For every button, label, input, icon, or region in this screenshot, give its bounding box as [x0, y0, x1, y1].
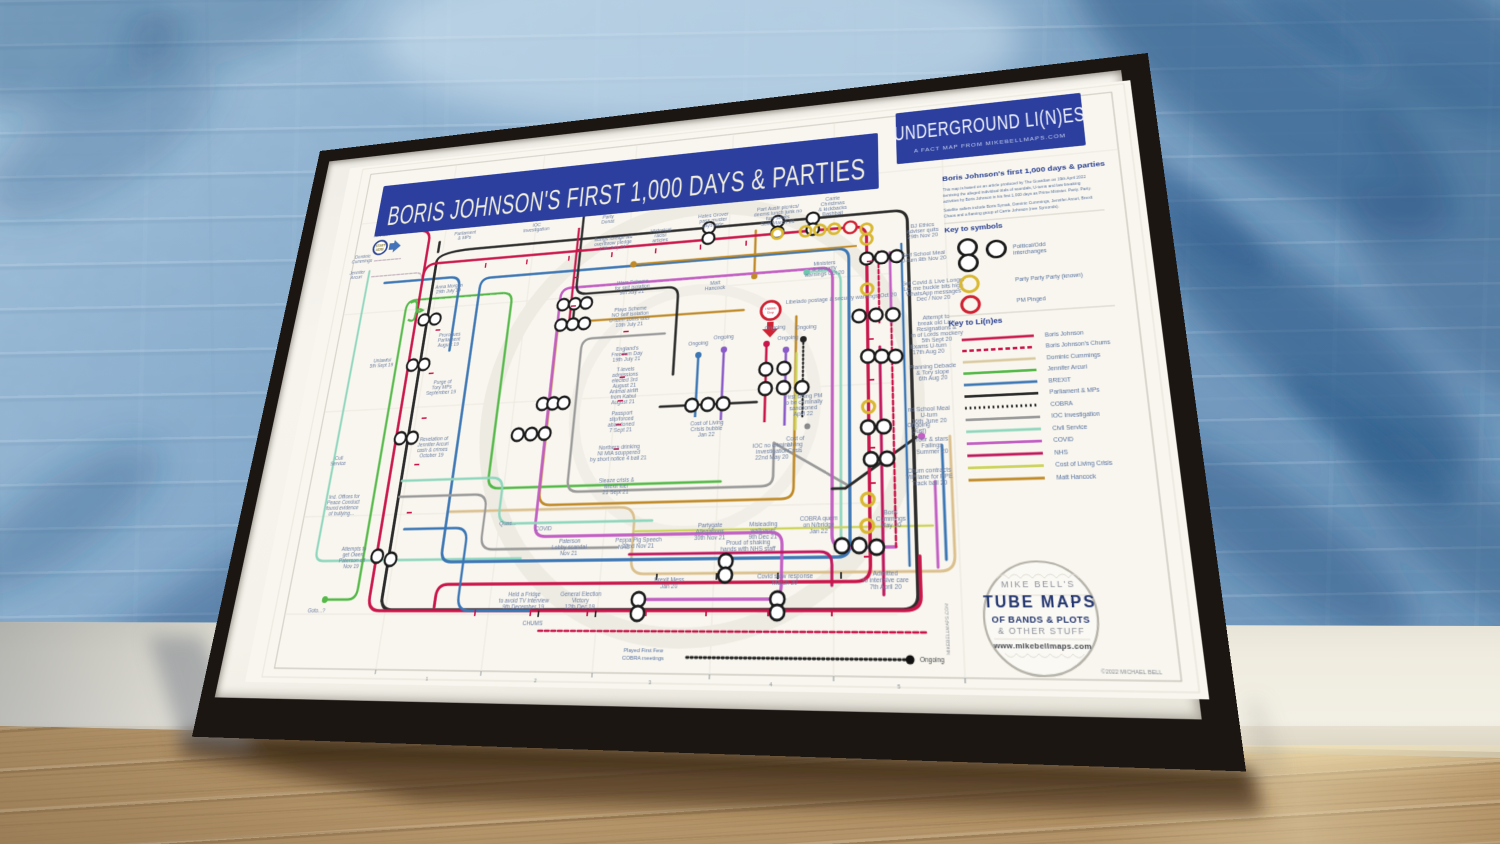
svg-text:Service: Service — [330, 461, 347, 467]
svg-text:Jan 22: Jan 22 — [698, 432, 715, 439]
svg-text:May 20: May 20 — [881, 522, 902, 529]
svg-text:COVID: COVID — [1053, 437, 1074, 444]
svg-text:Matt Hancock: Matt Hancock — [1056, 473, 1096, 481]
svg-text:of bullying...: of bullying... — [328, 511, 354, 517]
svg-text:Jan 22: Jan 22 — [809, 528, 827, 535]
svg-text:Ongoing: Ongoing — [920, 657, 945, 665]
svg-text:NHS: NHS — [1054, 449, 1069, 456]
svg-text:Nov 19: Nov 19 — [343, 564, 360, 570]
svg-text:Crisis: Crisis — [788, 448, 803, 455]
svg-text:22nd May 20: 22nd May 20 — [755, 454, 789, 461]
svg-text:7th April 20: 7th April 20 — [870, 584, 902, 591]
svg-text:4: 4 — [769, 681, 772, 688]
svg-text:www.mikebellmaps.com: www.mikebellmaps.com — [992, 641, 1093, 651]
svg-text:March 20: March 20 — [772, 580, 797, 587]
svg-text:NHS: NHS — [618, 544, 631, 550]
svg-text:OF BANDS & PLOTS: OF BANDS & PLOTS — [992, 615, 1092, 626]
svg-text:HERE: HERE — [375, 247, 384, 252]
svg-text:MIKE BELL'S: MIKE BELL'S — [1001, 580, 1076, 591]
svg-text:COVID: COVID — [535, 526, 553, 532]
svg-text:9th December 19: 9th December 19 — [502, 604, 544, 610]
svg-text:October 19: October 19 — [419, 452, 444, 458]
svg-text:Nov 21: Nov 21 — [560, 550, 578, 556]
svg-text:(Just): (Just) — [911, 428, 928, 435]
svg-text:TUBE MAPS: TUBE MAPS — [983, 593, 1098, 611]
svg-text:April 22: April 22 — [793, 411, 813, 418]
svg-text:COBRA: COBRA — [1050, 400, 1074, 407]
svg-text:Jan 20: Jan 20 — [660, 583, 678, 590]
svg-text:©2022 MICHAEL BELL: ©2022 MICHAEL BELL — [1101, 668, 1163, 676]
svg-text:Civil Service: Civil Service — [1052, 424, 1087, 432]
svg-text:Goto...?: Goto...? — [307, 608, 326, 614]
svg-text:30th Nov 21: 30th Nov 21 — [694, 535, 725, 542]
svg-text:5: 5 — [897, 683, 901, 690]
svg-text:August 21: August 21 — [611, 399, 635, 406]
svg-text:Quas...: Quas... — [499, 521, 517, 527]
svg-text:Summer 20: Summer 20 — [916, 448, 948, 455]
svg-text:COBRA meetings: COBRA meetings — [622, 655, 665, 662]
svg-text:BREXIT: BREXIT — [1048, 377, 1072, 384]
svg-text:Played First Few: Played First Few — [623, 647, 664, 654]
svg-text:Track ball 20: Track ball 20 — [912, 480, 948, 487]
svg-text:& OTHER STUFF: & OTHER STUFF — [998, 627, 1086, 638]
svg-text:hands with NHS staff: hands with NHS staff — [720, 546, 777, 553]
svg-text:7 Sept 21: 7 Sept 21 — [609, 427, 632, 434]
svg-text:CHUMS: CHUMS — [522, 620, 543, 626]
svg-text:21 Sept 21: 21 Sept 21 — [602, 489, 629, 496]
svg-text:12th Dec 19: 12th Dec 19 — [564, 604, 595, 610]
